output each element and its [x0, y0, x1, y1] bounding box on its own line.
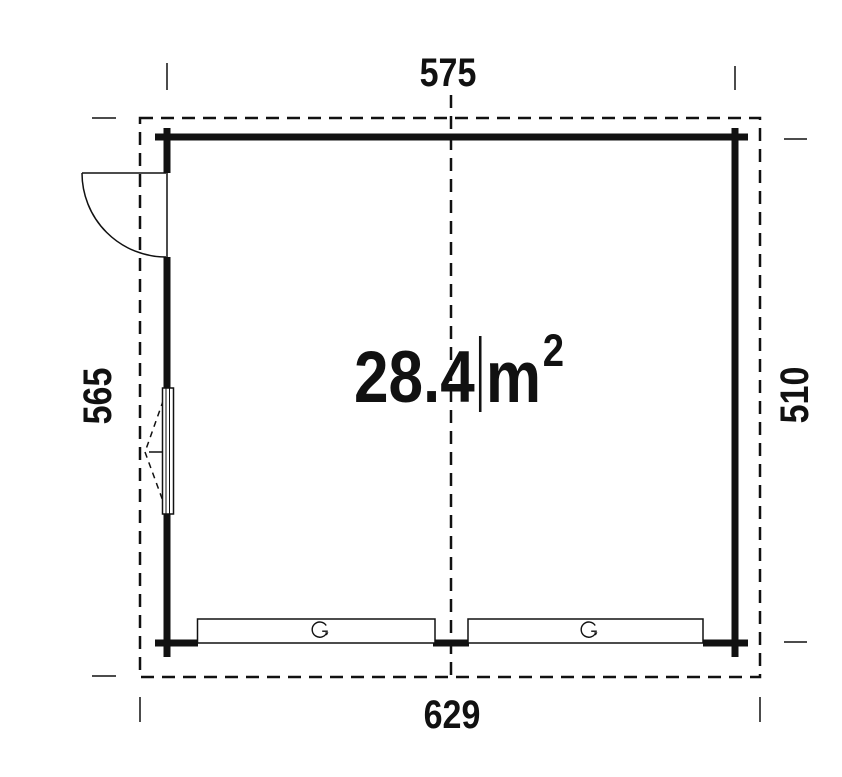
window-frame: [163, 388, 174, 514]
area-superscript: 2: [543, 325, 564, 376]
dimension-label-left: 565: [78, 368, 118, 425]
floor-plan: 575 629 565 510 28.4m2: [0, 0, 842, 777]
door-swing-arc-icon: [82, 173, 166, 257]
text-cursor: [479, 336, 482, 412]
dimension-label-bottom: 629: [424, 695, 481, 735]
dimension-label-right: 510: [775, 367, 815, 424]
dimension-label-top: 575: [420, 53, 477, 93]
window: [145, 388, 174, 514]
area-label: 28.4m2: [354, 328, 564, 414]
area-value: 28.4: [354, 337, 475, 418]
area-unit: m: [486, 337, 541, 418]
entry-door: [82, 173, 167, 257]
